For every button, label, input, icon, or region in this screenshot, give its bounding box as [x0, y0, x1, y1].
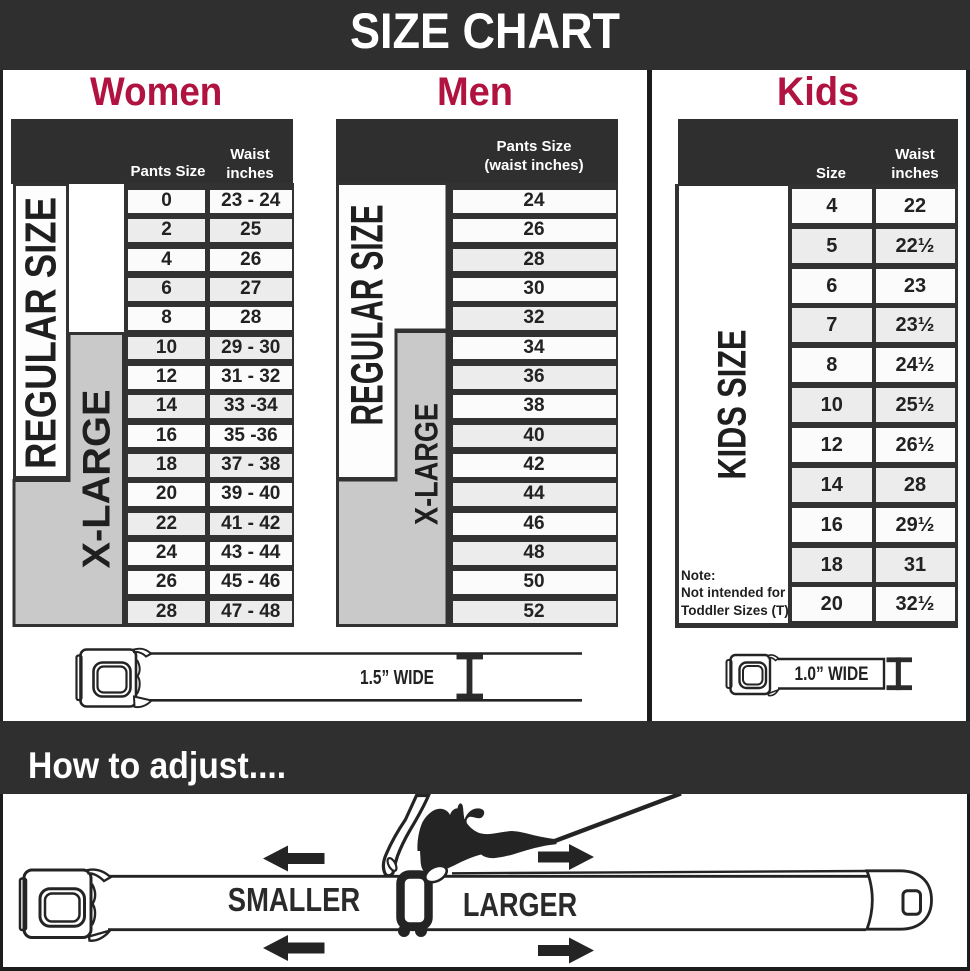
svg-text:KIDS SIZE: KIDS SIZE: [711, 330, 755, 480]
svg-text:1.5” WIDE: 1.5” WIDE: [360, 667, 434, 689]
svg-text:1.0” WIDE: 1.0” WIDE: [795, 664, 869, 685]
svg-text:X-LARGE: X-LARGE: [76, 390, 119, 569]
svg-text:X-LARGE: X-LARGE: [409, 403, 445, 525]
